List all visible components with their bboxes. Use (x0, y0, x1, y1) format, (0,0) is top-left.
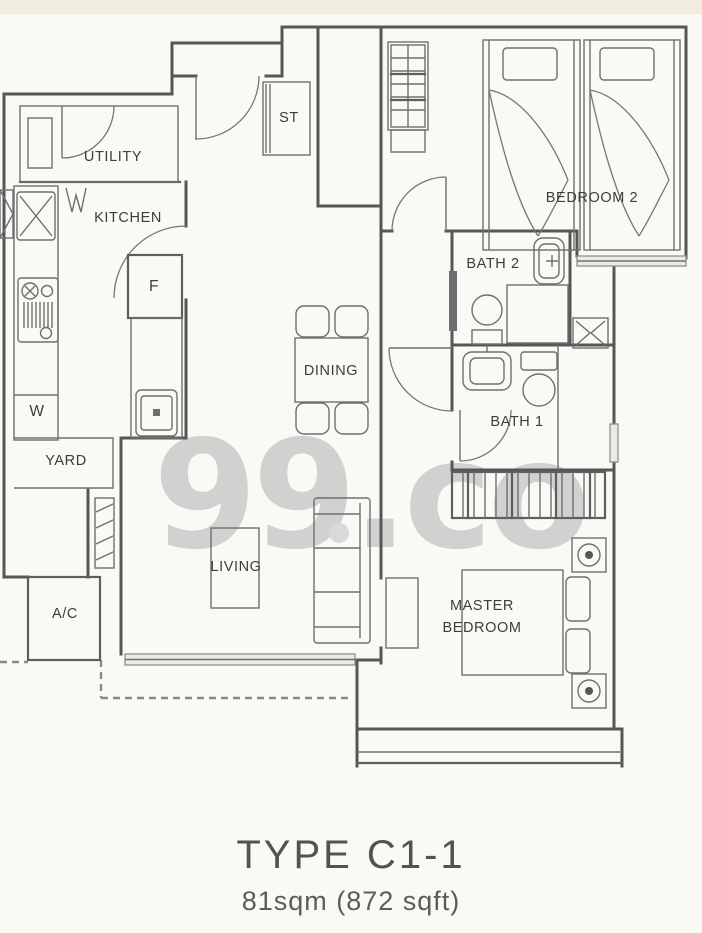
sofa-icon (314, 498, 370, 643)
hall-door-icon (389, 348, 452, 411)
room-label-ac: A/C (52, 606, 78, 622)
entrance-door-icon (196, 76, 259, 140)
plan-caption: TYPE C1-1 81sqm (872 sqft) (0, 833, 702, 917)
kitchen-side-window (0, 190, 13, 238)
stove-icon (18, 278, 58, 342)
sink-basin-icon (136, 390, 177, 438)
room-label-master-line1: MASTER (442, 595, 521, 617)
master-wardrobe-icon (452, 472, 605, 518)
dashed-boundary (0, 660, 352, 698)
floor-plan-drawing (0, 0, 702, 933)
utility-shelf (28, 118, 52, 168)
bath2-toilet-icon (472, 295, 502, 344)
floor-plan-page: 99.co (0, 0, 702, 933)
washer-label: W (29, 403, 44, 421)
nightstand-lamp-icon (572, 674, 606, 708)
room-label-bath1: BATH 1 (490, 414, 543, 430)
single-bed-icon (483, 40, 580, 250)
plan-area-subtitle: 81sqm (872 sqft) (0, 886, 702, 917)
room-label-kitchen: KITCHEN (94, 210, 162, 226)
bedroom2-door-icon (392, 177, 446, 231)
room-label-bath2: BATH 2 (466, 256, 519, 272)
single-bed-icon (584, 40, 680, 250)
room-label-store: ST (279, 110, 299, 126)
bath2-shower (507, 285, 568, 343)
room-label-dining: DINING (304, 363, 358, 379)
room-label-yard: YARD (45, 453, 87, 469)
kitchen-counter-right (131, 318, 182, 438)
fridge-label: F (149, 278, 159, 296)
bath2-sliding-door (449, 271, 457, 331)
vent-symbol (66, 188, 86, 212)
room-label-master: MASTER BEDROOM (442, 595, 521, 639)
room-label-bedroom2: BEDROOM 2 (546, 190, 638, 206)
ac-duct-hatch (95, 498, 114, 568)
room-label-master-line2: BEDROOM (442, 617, 521, 639)
bath1-sink-icon (463, 345, 511, 390)
plan-type-title: TYPE C1-1 (0, 833, 702, 878)
kitchen-sink-icon (17, 192, 55, 240)
master-console (386, 578, 418, 648)
bath2-sink-icon (534, 238, 564, 284)
doors (62, 76, 511, 461)
kitchen-counter-left (14, 186, 58, 440)
room-label-utility: UTILITY (84, 149, 142, 165)
utility-room (20, 106, 178, 182)
bath1-window (610, 424, 618, 462)
bedroom2-wardrobe-icon (388, 42, 428, 152)
windows (0, 190, 686, 763)
room-label-living: LIVING (210, 559, 261, 575)
nightstand-lamp-icon (572, 538, 606, 572)
bath1-toilet-icon (521, 352, 557, 406)
